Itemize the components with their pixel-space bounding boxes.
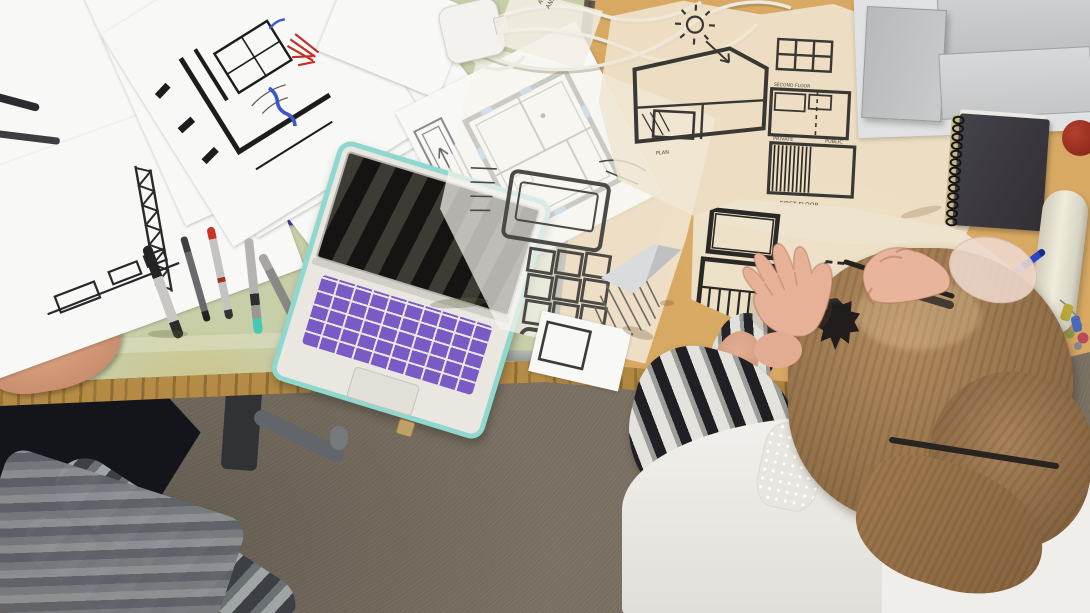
left-hand [738,230,848,348]
house-section-sketch [631,44,768,149]
office-chair-caster [330,426,348,450]
notebook-cover [952,113,1050,231]
table-stain [660,300,674,306]
red-round-object [1062,120,1090,156]
foam-model-piece [861,6,947,122]
left-wrist [754,332,802,368]
plan-label: PLAN [656,150,670,157]
blue-marker-scribble [240,18,336,128]
private-label: PRIVATE [773,136,794,143]
table-stain [148,330,188,338]
photo-scene: BUS CENTERSTATION AND PRIVATE … AND WORK [0,0,1090,613]
first-floor-plan: PRIVATE PUBLIC FIRST FLOOR [768,136,856,211]
public-label: PUBLIC [825,139,844,146]
spiral-notebook [944,113,1050,234]
private-hatching [772,145,810,193]
window-grid-sketch [777,39,832,72]
second-floor-plan: SECOND FLOOR [769,82,850,139]
right-hand [863,248,950,304]
corner-sketch-rect [539,322,590,369]
hands-and-pen [730,228,990,378]
